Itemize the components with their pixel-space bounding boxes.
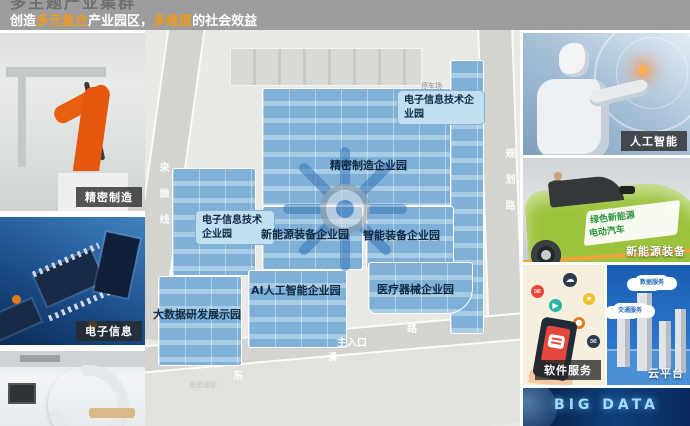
park-label-bigdata: 大数据研发展示园 <box>153 306 241 322</box>
photo-cloud-platform: 数据服务 交通服务 云平台 <box>607 265 690 385</box>
east-note: 东 <box>233 367 243 382</box>
car-mirror-shape <box>619 186 635 194</box>
idea-icon: ☁ <box>563 273 577 287</box>
car-wheel-hub-shape <box>541 250 551 260</box>
factory-column-shape <box>18 77 26 167</box>
photo-label-cloud: 云平台 <box>648 365 684 381</box>
photo-precision-manufacturing: 精密制造 <box>0 33 145 211</box>
bigdata-text: BIG DATA <box>523 397 690 413</box>
capacitor-dot-1 <box>12 295 21 304</box>
chip-shape-small <box>0 299 41 339</box>
cloud-tag-traffic: 交通服务 <box>613 303 647 316</box>
road-name-left: 来娘线 <box>155 162 170 240</box>
corridor-note: 景观通廊 <box>189 380 217 390</box>
photo-medical-equipment <box>0 351 145 426</box>
creek-note: 溪 <box>328 350 337 363</box>
photo-label-electronics: 电子信息 <box>76 321 142 341</box>
bystander-head-shape <box>554 172 562 180</box>
header-band: 多主题产业集群 创造多元复合产业园区，多维度的社会效益 <box>0 0 690 30</box>
mail-icon: ✉ <box>531 285 544 298</box>
subtitle-suffix: 的社会效益 <box>192 14 257 29</box>
play-icon: ▶ <box>549 299 562 312</box>
photo-label-new-energy: 新能源装备 <box>626 243 686 259</box>
park-label-eit-top: 电子信息技术企业园 <box>397 90 485 125</box>
photo-ai-robot: 人工智能 <box>523 33 690 155</box>
park-label-smart: 智能装备企业园 <box>363 227 440 243</box>
park-label-new-energy: 新能源装备企业园 <box>261 226 349 242</box>
main-entrance-note: 主入口 <box>337 334 367 349</box>
phone-screen-shape <box>541 325 571 365</box>
photo-software-services: ☁ ✉ ★ ▶ ● ✉ 软件服务 <box>523 265 605 385</box>
subtitle-highlight-1: 多元复合 <box>36 14 88 29</box>
subtitle-highlight-2: 多维度 <box>153 14 192 29</box>
service-buildings-top <box>230 48 422 86</box>
road-name-right: 规划路 <box>501 148 516 226</box>
cloud-tag-data: 数据服务 <box>635 275 669 288</box>
photo-ev-car: 绿色新能源 电动汽车 新能源装备 <box>523 158 690 262</box>
exam-table-shape <box>89 408 135 418</box>
subtitle-middle: 产业园区， <box>88 14 153 29</box>
photo-label-software: 软件服务 <box>535 360 601 380</box>
presentation-slide: 多主题产业集群 创造多元复合产业园区，多维度的社会效益 精密制造 电子信息 <box>0 0 690 426</box>
monitor-shape <box>8 383 36 404</box>
subtitle-prefix: 创造 <box>10 14 36 29</box>
building-shape-1 <box>617 311 630 367</box>
component-shape-dark <box>94 232 140 298</box>
hologram-glow-dot <box>638 65 648 75</box>
message-icon: ✉ <box>587 335 600 348</box>
parking-note: 停车场 <box>421 81 442 91</box>
building-shape-4 <box>675 309 686 373</box>
park-label-medical: 医疗器械企业园 <box>377 281 454 297</box>
park-label-precision: 精密制造企业园 <box>330 157 407 173</box>
ceiling-light-shape <box>20 355 60 362</box>
bigdata-banner: BIG DATA <box>523 388 690 426</box>
star-icon: ★ <box>583 293 595 305</box>
park-label-ai: AI人工智能企业园 <box>251 282 341 298</box>
photo-label-ai: 人工智能 <box>621 131 687 151</box>
building-shape-3 <box>659 321 671 369</box>
photo-electronics: 电子信息 <box>0 217 145 345</box>
chat-bubble-icon <box>547 334 565 350</box>
page-subtitle: 创造多元复合产业园区，多维度的社会效益 <box>10 10 257 29</box>
road-char-note: 路 <box>407 320 417 335</box>
robot-head-shape <box>559 43 589 77</box>
factory-beam-shape <box>6 67 106 77</box>
master-plan-map: 电子信息技术企业园 精密制造企业园 电子信息技术企业园 新能源装备企业园 智能装… <box>145 30 520 426</box>
photo-label-precision: 精密制造 <box>76 187 142 207</box>
